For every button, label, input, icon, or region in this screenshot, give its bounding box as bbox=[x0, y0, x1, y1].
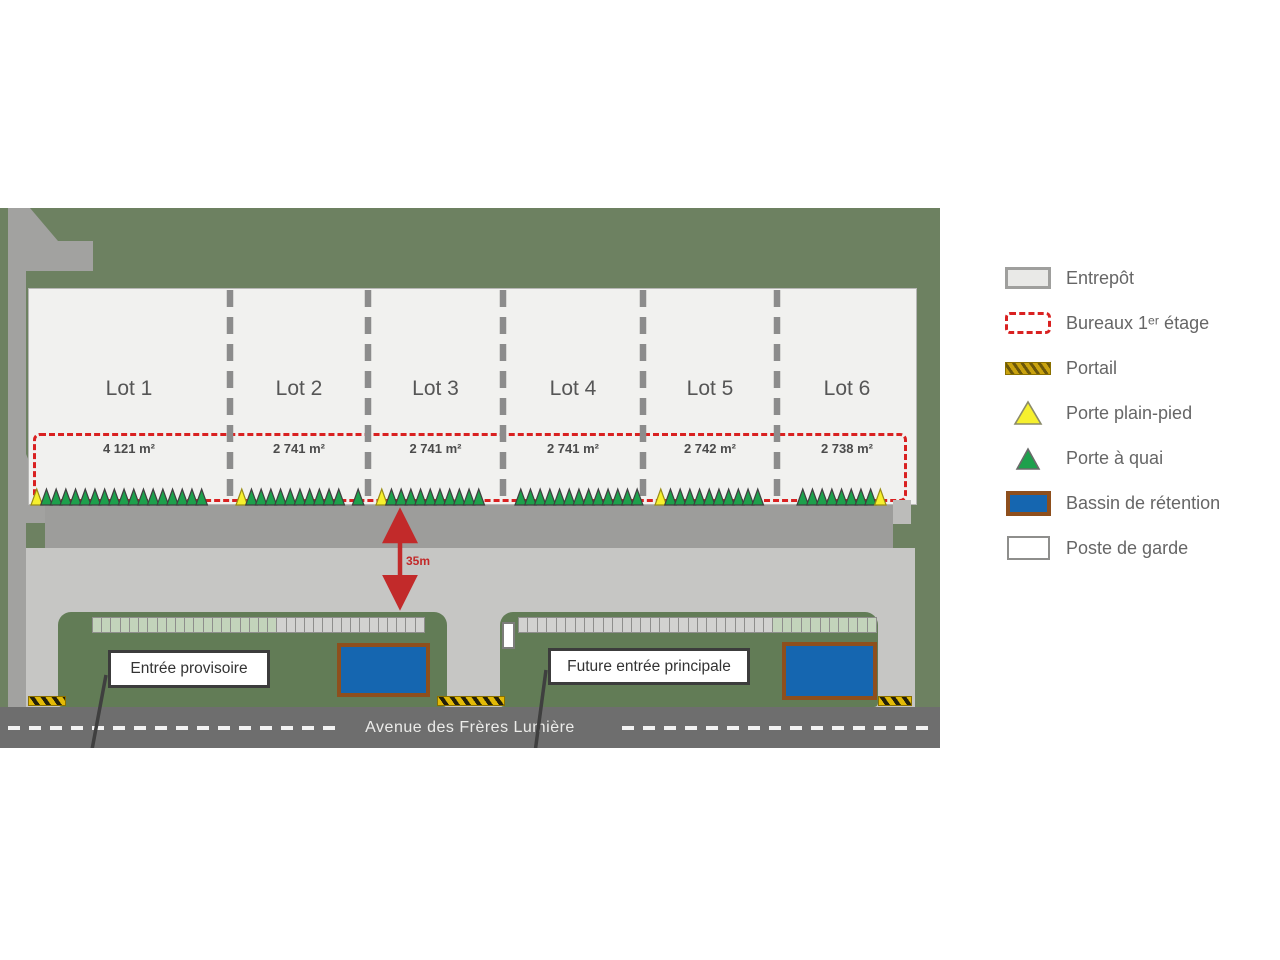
parking-space bbox=[726, 618, 735, 632]
parking-space bbox=[689, 618, 698, 632]
parking-space bbox=[287, 618, 296, 632]
parking-space bbox=[148, 618, 157, 632]
parking-space bbox=[222, 618, 231, 632]
parking-space bbox=[821, 618, 830, 632]
legend-label: Poste de garde bbox=[1066, 538, 1188, 559]
parking-space bbox=[121, 618, 130, 632]
parking-space bbox=[176, 618, 185, 632]
avenue-name: Avenue des Frères Lumière bbox=[0, 719, 940, 737]
gate-portal bbox=[878, 696, 912, 706]
parking-space bbox=[397, 618, 406, 632]
legend-item-entrepot: Entrepôt bbox=[1003, 262, 1278, 294]
parking-space bbox=[792, 618, 801, 632]
offices-first-floor-outline bbox=[33, 433, 907, 502]
parking-space bbox=[651, 618, 660, 632]
parking-space bbox=[333, 618, 342, 632]
site-plan: Lot 14 121 m²Lot 22 741 m²Lot 32 741 m²L… bbox=[0, 208, 940, 748]
lot-name: Lot 3 bbox=[368, 377, 503, 401]
parking-space bbox=[342, 618, 351, 632]
parking-space bbox=[858, 618, 867, 632]
parking-space bbox=[849, 618, 858, 632]
legend: EntrepôtBureaux 1ᵉʳ étagePortailPorte pl… bbox=[1003, 262, 1278, 577]
parking-space bbox=[811, 618, 820, 632]
parking-space bbox=[802, 618, 811, 632]
parking-space bbox=[745, 618, 754, 632]
legend-label: Porte plain-pied bbox=[1066, 403, 1192, 424]
parking-space bbox=[736, 618, 745, 632]
lot-name: Lot 4 bbox=[503, 377, 643, 401]
lot-name: Lot 1 bbox=[28, 377, 230, 401]
lot-name: Lot 6 bbox=[777, 377, 917, 401]
legend-item-porte-plain-pied: Porte plain-pied bbox=[1003, 397, 1278, 429]
parking-space bbox=[707, 618, 716, 632]
legend-label: Porte à quai bbox=[1066, 448, 1163, 469]
parking-space bbox=[679, 618, 688, 632]
parking-space bbox=[379, 618, 388, 632]
parking-space bbox=[755, 618, 764, 632]
parking-space bbox=[250, 618, 259, 632]
portail-swatch bbox=[1005, 362, 1051, 375]
parking-space bbox=[538, 618, 547, 632]
poste-de-garde-swatch bbox=[1007, 536, 1050, 560]
parking-space bbox=[314, 618, 323, 632]
parking-space bbox=[604, 618, 613, 632]
retention-basin bbox=[782, 642, 877, 700]
legend-swatch-box bbox=[1003, 362, 1053, 375]
parking-strip bbox=[518, 617, 877, 633]
entrepot-swatch bbox=[1005, 267, 1051, 289]
gate-portal bbox=[437, 696, 505, 706]
parking-space bbox=[594, 618, 603, 632]
bassin-swatch bbox=[1006, 491, 1051, 516]
parking-space bbox=[557, 618, 566, 632]
legend-swatch-box bbox=[1003, 491, 1053, 516]
parking-space bbox=[167, 618, 176, 632]
parking-space bbox=[717, 618, 726, 632]
parking-space bbox=[296, 618, 305, 632]
parking-space bbox=[623, 618, 632, 632]
dock-apron bbox=[45, 505, 893, 548]
parking-space bbox=[670, 618, 679, 632]
parking-space bbox=[519, 618, 528, 632]
parking-space bbox=[830, 618, 839, 632]
retention-basin bbox=[337, 643, 430, 697]
temporary-entrance-callout: Entrée provisoire bbox=[108, 650, 270, 688]
legend-item-bureaux: Bureaux 1ᵉʳ étage bbox=[1003, 307, 1278, 339]
parking-space bbox=[839, 618, 848, 632]
ground-level-door-icon bbox=[1013, 400, 1043, 426]
parking-space bbox=[204, 618, 213, 632]
parking-space bbox=[102, 618, 111, 632]
parking-space bbox=[388, 618, 397, 632]
legend-item-porte-a-quai: Porte à quai bbox=[1003, 442, 1278, 474]
parking-space bbox=[93, 618, 102, 632]
parking-space bbox=[360, 618, 369, 632]
parking-space bbox=[370, 618, 379, 632]
temporary-entrance-label: Entrée provisoire bbox=[130, 660, 247, 678]
parking-space bbox=[585, 618, 594, 632]
parking-space bbox=[632, 618, 641, 632]
parking-space bbox=[406, 618, 415, 632]
legend-label: Entrepôt bbox=[1066, 268, 1134, 289]
parking-space bbox=[528, 618, 537, 632]
parking-space bbox=[185, 618, 194, 632]
legend-item-portail: Portail bbox=[1003, 352, 1278, 384]
legend-item-bassin: Bassin de rétention bbox=[1003, 487, 1278, 519]
parking-space bbox=[277, 618, 286, 632]
parking-space bbox=[416, 618, 424, 632]
future-entrance-label: Future entrée principale bbox=[567, 658, 731, 676]
parking-space bbox=[213, 618, 222, 632]
parking-space bbox=[130, 618, 139, 632]
parking-space bbox=[305, 618, 314, 632]
site-plan-page: Lot 14 121 m²Lot 22 741 m²Lot 32 741 m²L… bbox=[0, 0, 1280, 960]
legend-swatch-box bbox=[1003, 400, 1053, 426]
parking-space bbox=[323, 618, 332, 632]
legend-item-poste-de-garde: Poste de garde bbox=[1003, 532, 1278, 564]
legend-label: Bassin de rétention bbox=[1066, 493, 1220, 514]
guard-post bbox=[502, 622, 515, 649]
parking-space bbox=[241, 618, 250, 632]
parking-space bbox=[566, 618, 575, 632]
parking-space bbox=[576, 618, 585, 632]
dock-door-icon bbox=[1013, 445, 1043, 471]
parking-space bbox=[139, 618, 148, 632]
parking-space bbox=[613, 618, 622, 632]
parking-space bbox=[194, 618, 203, 632]
parking-space bbox=[547, 618, 556, 632]
parking-space bbox=[259, 618, 268, 632]
parking-space bbox=[158, 618, 167, 632]
legend-swatch-box bbox=[1003, 312, 1053, 334]
parking-space bbox=[773, 618, 782, 632]
distance-35m-label: 35m bbox=[406, 554, 430, 568]
parking-strip bbox=[92, 617, 425, 633]
legend-label: Bureaux 1ᵉʳ étage bbox=[1066, 313, 1209, 334]
parking-space bbox=[268, 618, 277, 632]
parking-space bbox=[698, 618, 707, 632]
parking-space bbox=[111, 618, 120, 632]
parking-space bbox=[868, 618, 876, 632]
parking-space bbox=[660, 618, 669, 632]
parking-space bbox=[351, 618, 360, 632]
future-entrance-callout: Future entrée principale bbox=[548, 648, 750, 685]
parking-space bbox=[783, 618, 792, 632]
bureaux-swatch bbox=[1005, 312, 1051, 334]
legend-swatch-box bbox=[1003, 445, 1053, 471]
parking-space bbox=[231, 618, 240, 632]
gate-portal bbox=[28, 696, 66, 706]
parking-space bbox=[641, 618, 650, 632]
legend-swatch-box bbox=[1003, 267, 1053, 289]
lot-name: Lot 5 bbox=[643, 377, 777, 401]
dock-apron-step bbox=[893, 500, 911, 524]
parking-space bbox=[764, 618, 773, 632]
lot-name: Lot 2 bbox=[230, 377, 368, 401]
legend-swatch-box bbox=[1003, 536, 1053, 560]
legend-label: Portail bbox=[1066, 358, 1117, 379]
